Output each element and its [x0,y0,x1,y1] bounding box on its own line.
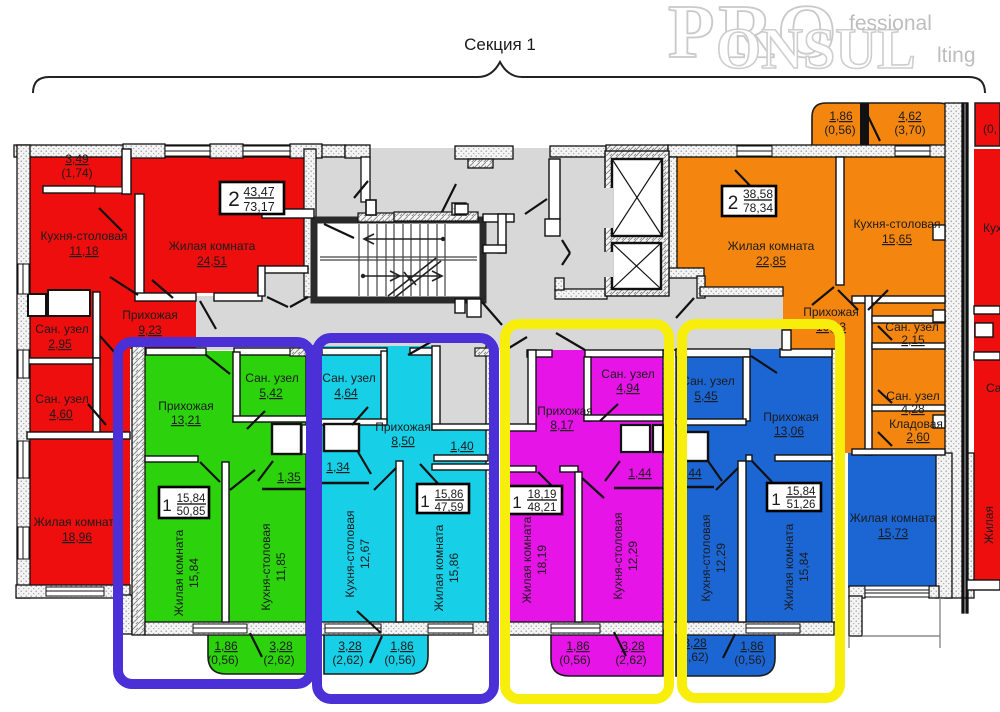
svg-text:5,42: 5,42 [259,386,283,400]
svg-text:1,34: 1,34 [326,460,350,474]
svg-text:13,21: 13,21 [171,413,201,427]
svg-text:15,84: 15,84 [787,486,816,498]
svg-text:5,45: 5,45 [694,389,718,403]
svg-text:Прихожая: Прихожая [537,404,593,418]
svg-text:Жилая комната: Жилая комната [169,239,256,253]
svg-text:Кухня-столовая: Кухня-столовая [40,229,127,243]
svg-text:3,49: 3,49 [65,152,89,166]
svg-text:Прихожая: Прихожая [763,410,819,424]
svg-text:1,40: 1,40 [450,439,474,453]
svg-text:11,18: 11,18 [69,244,98,258]
svg-text:Прихожая: Прихожая [803,305,859,319]
svg-text:1,86: 1,86 [214,639,238,653]
svg-text:1,44: 1,44 [628,466,652,480]
svg-text:47,59: 47,59 [435,502,464,514]
svg-text:4,62: 4,62 [898,109,922,123]
svg-text:18,96: 18,96 [62,530,92,544]
svg-text:2,95: 2,95 [48,337,72,351]
svg-text:(3,70): (3,70) [894,123,925,137]
svg-text:(0,56): (0,56) [559,653,590,667]
svg-text:8,50: 8,50 [391,434,415,448]
svg-text:Кухня: Кухня [983,221,1000,235]
svg-text:fessional: fessional [849,12,932,35]
svg-text:Сан. узел: Сан. узел [35,392,88,406]
svg-text:(0,: (0, [983,122,997,136]
svg-text:Секция 1: Секция 1 [464,35,536,54]
svg-text:4,28: 4,28 [901,402,925,416]
svg-text:43,47: 43,47 [243,185,274,199]
svg-text:1: 1 [512,493,521,512]
svg-text:Сан. узел: Сан. узел [886,389,939,403]
svg-text:1,86: 1,86 [740,639,764,653]
svg-text:1,86: 1,86 [566,639,590,653]
svg-text:(0,56): (0,56) [384,653,415,667]
svg-text:Кладовая: Кладовая [889,417,943,431]
svg-text:Сан. узел: Сан. узел [681,374,734,388]
svg-text:9,23: 9,23 [138,323,162,337]
svg-text:1,86: 1,86 [390,639,414,653]
svg-text:4,60: 4,60 [49,407,73,421]
svg-text:1: 1 [420,492,429,511]
svg-text:(0,56): (0,56) [207,653,238,667]
svg-text:51,26: 51,26 [787,499,816,511]
svg-text:Жилая: Жилая [982,506,996,544]
svg-text:2: 2 [728,193,739,214]
svg-text:3,28: 3,28 [621,639,645,653]
svg-text:18,19: 18,19 [528,489,557,501]
svg-text:48,21: 48,21 [528,502,557,514]
svg-text:Сан. узел: Сан. узел [601,367,654,381]
svg-text:13,06: 13,06 [774,424,804,438]
svg-text:3,28: 3,28 [269,639,293,653]
svg-text:78,34: 78,34 [743,201,773,215]
svg-text:4,94: 4,94 [616,381,640,395]
svg-text:(2,62): (2,62) [263,653,294,667]
svg-text:50,85: 50,85 [177,506,206,518]
svg-text:Сан. узел: Сан. узел [35,322,88,336]
svg-text:8,17: 8,17 [550,418,574,432]
svg-text:15,73: 15,73 [878,526,908,540]
svg-text:2,15: 2,15 [901,333,925,347]
svg-text:2,60: 2,60 [906,430,930,444]
svg-text:lting: lting [937,44,976,67]
svg-text:1,86: 1,86 [829,109,853,123]
svg-text:(2,62): (2,62) [615,653,646,667]
svg-text:Кухня-столовая: Кухня-столовая [853,217,940,231]
svg-text:Прихожая: Прихожая [158,399,214,413]
svg-text:Прихожая: Прихожая [375,420,431,434]
svg-text:Жилая комната: Жилая комната [850,511,937,525]
svg-text:73,17: 73,17 [243,200,274,214]
svg-text:38,58: 38,58 [743,187,773,201]
svg-text:15,84: 15,84 [177,493,206,505]
svg-text:Са: Са [986,381,1000,395]
svg-text:24,51: 24,51 [197,254,227,268]
svg-text:Сан. узел: Сан. узел [245,371,298,385]
svg-text:(0,56): (0,56) [734,653,765,667]
svg-text:Сан. узел: Сан. узел [885,320,938,334]
svg-text:Жилая комната: Жилая комната [34,515,121,529]
svg-text:1,35: 1,35 [277,470,301,484]
svg-text:Сан. узел: Сан. узел [322,371,375,385]
svg-text:22,85: 22,85 [756,254,786,268]
svg-text:15,86: 15,86 [435,489,464,501]
svg-text:(1,74): (1,74) [61,166,92,180]
svg-text:2: 2 [228,188,240,211]
svg-text:(0,56): (0,56) [824,123,855,137]
svg-text:15,65: 15,65 [882,232,912,246]
svg-text:3,28: 3,28 [338,639,362,653]
svg-text:1: 1 [771,490,780,509]
svg-text:1: 1 [162,496,171,515]
svg-text:Прихожая: Прихожая [122,308,178,322]
svg-text:Жилая комната: Жилая комната [728,239,815,253]
svg-text:(2,62): (2,62) [332,653,363,667]
svg-text:4,64: 4,64 [334,386,358,400]
